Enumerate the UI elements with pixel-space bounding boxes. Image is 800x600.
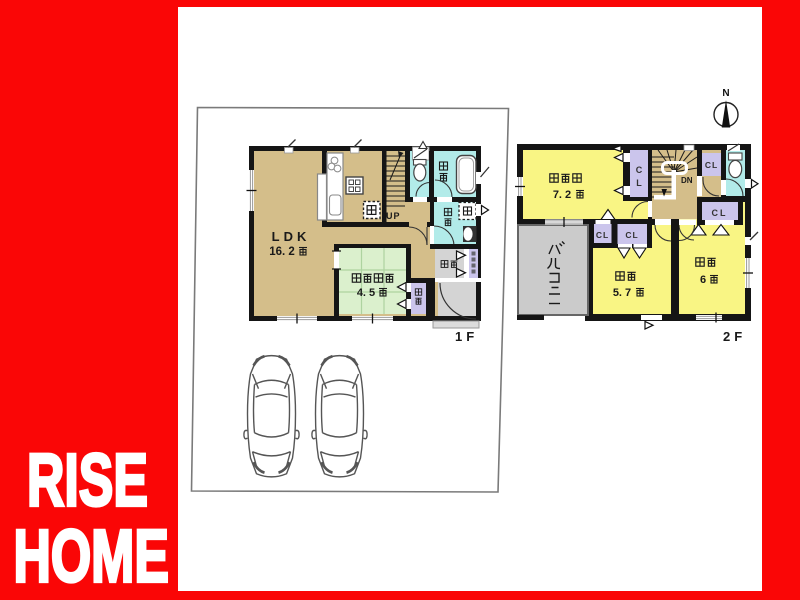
svg-text:16. 2: 16. 2 [269, 246, 295, 258]
svg-text:2F: 2F [723, 329, 746, 344]
svg-text:6: 6 [700, 274, 706, 286]
svg-text:UP: UP [386, 211, 401, 221]
svg-text:CL: CL [712, 208, 728, 218]
svg-text:CL: CL [705, 160, 718, 170]
svg-text:5. 7: 5. 7 [613, 287, 631, 299]
svg-text:1F: 1F [455, 329, 478, 344]
svg-text:4. 5: 4. 5 [357, 287, 375, 299]
svg-text:LDK: LDK [272, 229, 311, 244]
svg-text:RISE: RISE [27, 438, 148, 521]
svg-text:DN: DN [681, 176, 693, 185]
svg-text:HOME: HOME [14, 514, 169, 597]
svg-text:N: N [722, 88, 729, 99]
svg-text:C: C [636, 165, 643, 175]
svg-text:CL: CL [596, 230, 609, 240]
svg-text:L: L [636, 178, 642, 188]
svg-text:7. 2: 7. 2 [553, 189, 571, 201]
svg-text:CL: CL [625, 230, 638, 240]
